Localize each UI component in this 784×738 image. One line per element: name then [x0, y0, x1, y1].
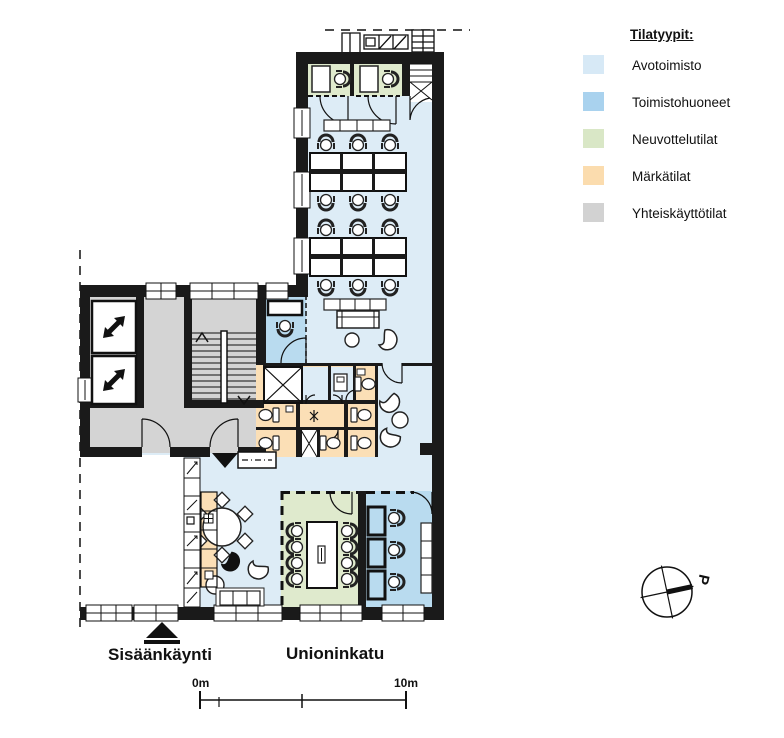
legend-swatch-toimistohuoneet	[583, 92, 604, 111]
legend-title: Tilatyypit:	[630, 27, 694, 42]
floor-plan-drawing	[0, 0, 784, 738]
legend-label-neuvottelutilat: Neuvottelutilat	[632, 132, 718, 147]
entrance-label: Sisäänkäynti	[108, 645, 212, 665]
legend-label-avotoimisto: Avotoimisto	[632, 58, 702, 73]
legend-swatch-yhteiskayttotilat	[583, 203, 604, 222]
legend-swatch-markatilat	[583, 166, 604, 185]
street-label: Unioninkatu	[286, 644, 384, 664]
outside-area	[86, 455, 184, 609]
closet-column	[184, 458, 200, 607]
scale-end-label: 10m	[394, 676, 418, 690]
desk-bank-2	[310, 220, 406, 295]
desk-bank-1	[310, 135, 406, 210]
scale-start-label: 0m	[192, 676, 209, 690]
floor-plan-page: Tilatyypit: Avotoimisto Toimistohuoneet …	[0, 0, 784, 738]
entrance-arrow	[144, 622, 180, 644]
legend-label-toimistohuoneet: Toimistohuoneet	[632, 95, 730, 110]
compass-rose	[635, 560, 699, 624]
scale-bar	[200, 691, 406, 709]
elevator-1	[92, 301, 136, 353]
legend-label-markatilat: Märkätilat	[632, 169, 691, 184]
legend-swatch-avotoimisto	[583, 55, 604, 74]
upper-landing-structures	[342, 30, 434, 52]
legend-label-yhteiskayttotilat: Yhteiskäyttötilat	[632, 206, 727, 221]
meeting-room-furniture	[287, 522, 357, 588]
legend-swatch-neuvottelutilat	[583, 129, 604, 148]
elevator-2	[92, 356, 136, 404]
